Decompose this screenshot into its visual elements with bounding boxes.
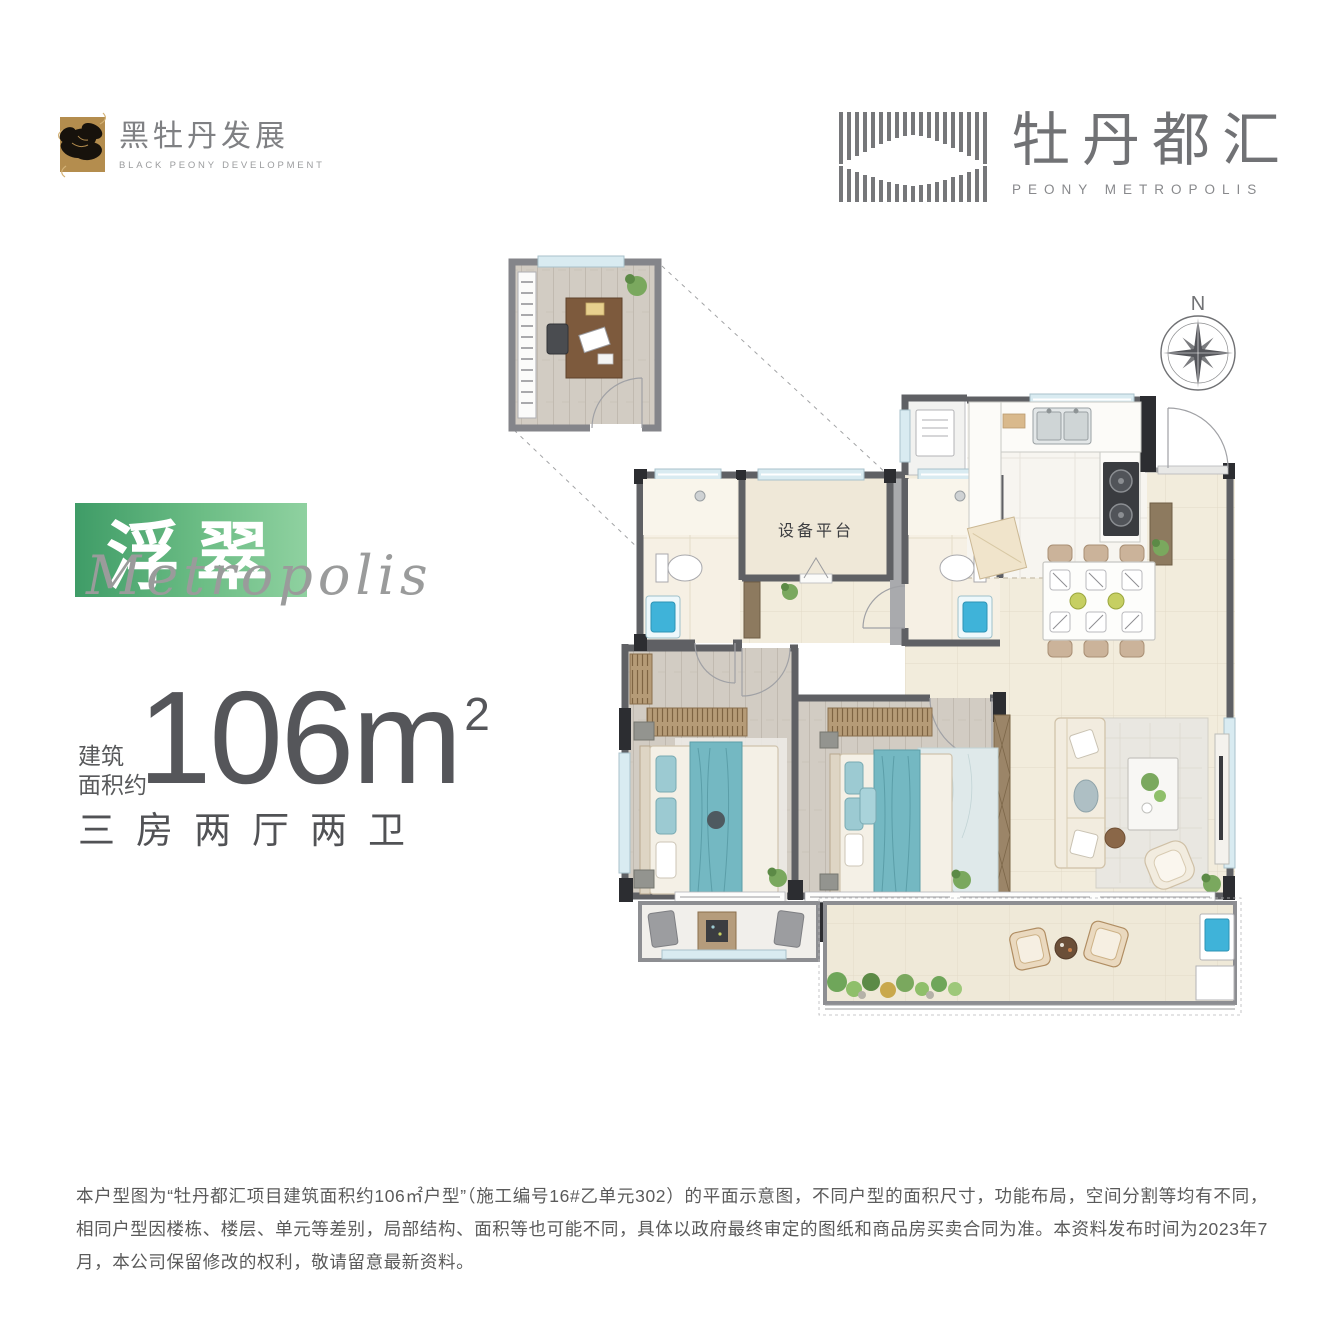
coffee-table-icon [1128, 758, 1178, 830]
platform-label: 设备平台 [778, 522, 854, 540]
washer-icon [916, 410, 954, 456]
shower-icon [695, 491, 705, 501]
sofa-icon [1055, 718, 1105, 868]
window [662, 950, 786, 959]
laundry-sink-icon [1200, 914, 1234, 960]
cutting-board [1003, 414, 1025, 428]
nightstand-icon [820, 874, 838, 890]
cabinet-icon [1196, 966, 1234, 1000]
sink-icon [958, 596, 992, 638]
desk-icon [566, 298, 622, 378]
cushion-icon [648, 910, 678, 947]
floorplan-poster: 黑牡丹发展 BLACK PEONY DEVELOPMENT 牡丹都汇 PEONY… [0, 0, 1334, 1334]
developer-name-cn: 黑牡丹发展 [119, 111, 325, 155]
area-exponent: 2 [464, 688, 488, 740]
balcony-sliders [675, 892, 1215, 902]
toilet-icon [656, 554, 702, 582]
developer-name-en: BLACK PEONY DEVELOPMENT [119, 160, 325, 171]
double-sink-icon [1033, 408, 1091, 444]
wardrobe-icon [828, 708, 932, 736]
shelf-icon [630, 654, 652, 704]
cushion-icon [774, 910, 804, 947]
bookshelf-icon [518, 272, 536, 418]
wardrobe-icon [647, 708, 747, 736]
nightstand-icon [820, 732, 838, 748]
detached-study-room [512, 256, 658, 432]
bars-logo-icon [838, 112, 990, 204]
nightstand-icon [634, 722, 654, 740]
project-name-cn: 牡丹都汇 [1012, 112, 1292, 170]
area-label-line1: 建筑 [78, 742, 147, 771]
hall-console [744, 582, 760, 638]
main-unit: 设备平台 [619, 394, 1241, 1015]
floorplan: N [490, 248, 1280, 1048]
entry-door [1158, 408, 1228, 474]
bed-icon [830, 750, 952, 898]
area-label-line2: 面积约 [78, 771, 147, 800]
side-table-icon [1105, 828, 1125, 848]
outdoor-table-icon [1055, 937, 1077, 959]
nightstand-icon [634, 870, 654, 888]
developer-logo: 黑牡丹发展 BLACK PEONY DEVELOPMENT [58, 110, 325, 172]
hall-floor [740, 578, 910, 643]
tv-console-icon [1215, 734, 1229, 864]
floorplan-drawing: N [490, 248, 1280, 1048]
outdoor-chair-icon [1008, 927, 1051, 972]
black-peony-logo-icon [58, 110, 106, 172]
chair-icon [547, 324, 568, 354]
stove-icon [1103, 462, 1139, 536]
window [538, 256, 624, 267]
unit-name-script: Metropolis [86, 544, 433, 607]
dining-set [1043, 545, 1155, 657]
compass-icon: N [1161, 293, 1235, 390]
area-label: 建筑 面积约 [78, 742, 147, 800]
compass-north-label: N [1191, 293, 1205, 315]
project-logo: 牡丹都汇 PEONY METROPOLIS [838, 112, 1292, 204]
bed-icon [640, 742, 778, 898]
sink-icon [646, 596, 680, 638]
tray-table-icon [698, 912, 736, 950]
project-name-en: PEONY METROPOLIS [1012, 182, 1292, 197]
disclaimer-text: 本户型图为“牡丹都汇项目建筑面积约106㎡户型”（施工编号16#乙单元302）的… [76, 1180, 1268, 1280]
glass-railing [825, 1005, 1235, 1009]
door-opening [590, 424, 642, 432]
layout-description: 三房两厅两卫 [78, 800, 426, 854]
area-value: 106m2 [138, 672, 484, 804]
shower-icon [955, 491, 965, 501]
